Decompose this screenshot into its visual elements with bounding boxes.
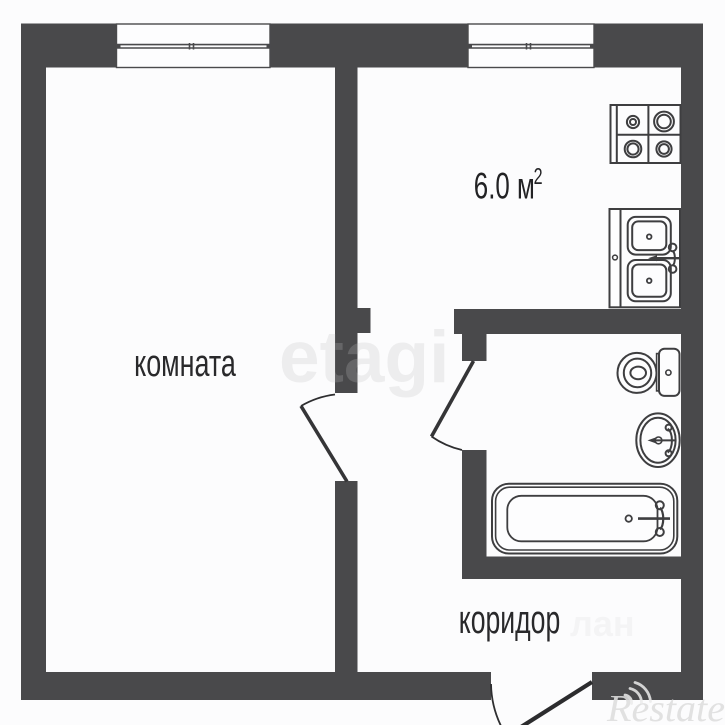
svg-text:комната: комната — [134, 341, 236, 384]
svg-text:2: 2 — [534, 164, 543, 189]
svg-text:etagi: etagi — [279, 317, 449, 398]
svg-text:лан: лан — [570, 603, 635, 644]
svg-text:коридор: коридор — [459, 598, 560, 643]
svg-text:Restate: Restate — [606, 688, 725, 725]
svg-text:6.0 м: 6.0 м — [474, 165, 535, 207]
